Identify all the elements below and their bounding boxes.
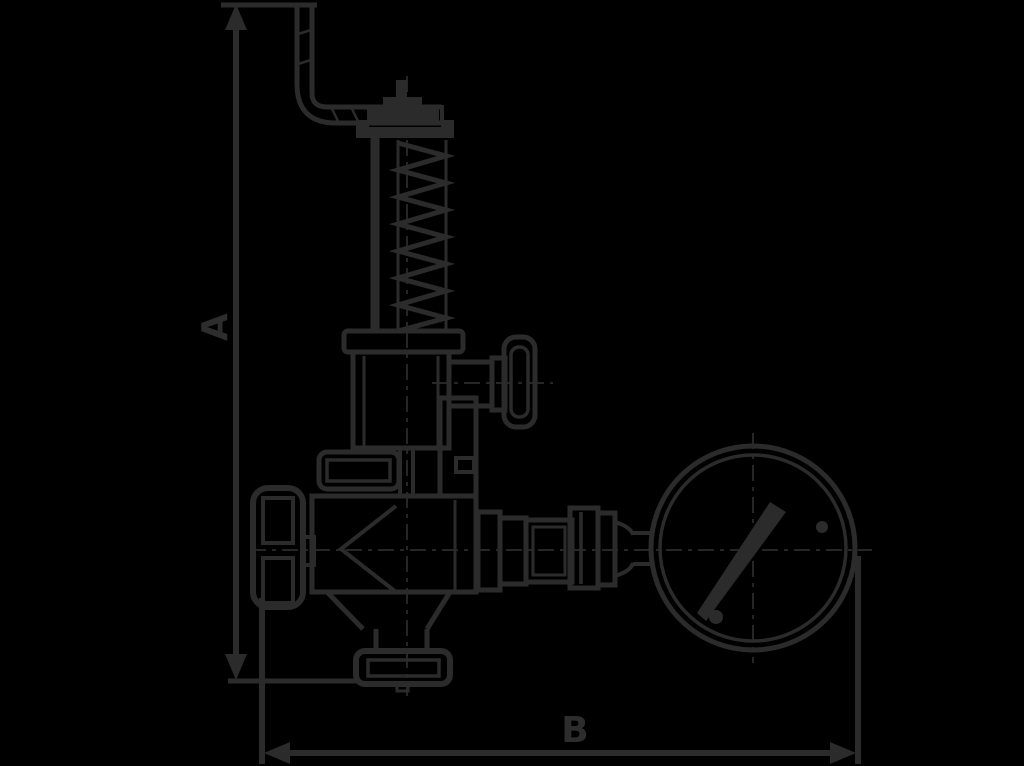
dim-b-arrow-right-icon [830,742,856,764]
gauge-dot-left [709,610,723,624]
spring-housing [375,138,446,333]
dimension-b-label: B [555,711,595,751]
handwheel-stem [303,537,314,565]
outlet-flange [356,651,450,691]
centerlines [250,76,872,696]
handwheel [253,488,314,607]
bonnet-cap [344,331,463,352]
gauge-needle [697,502,786,621]
dim-a-arrow-up-icon [225,4,247,30]
dim-b-arrow-left-icon [264,742,290,764]
gauge-dot-right [816,521,828,533]
valve-body [312,496,476,652]
drawing-canvas: A B [0,0,1024,766]
valve-technical-drawing [0,0,1024,766]
dimension-a-label: A [196,307,236,347]
bonnet-body [353,352,449,448]
union-nut [319,452,474,489]
spring-coils [398,143,446,331]
dim-a-arrow-down-icon [225,654,247,680]
